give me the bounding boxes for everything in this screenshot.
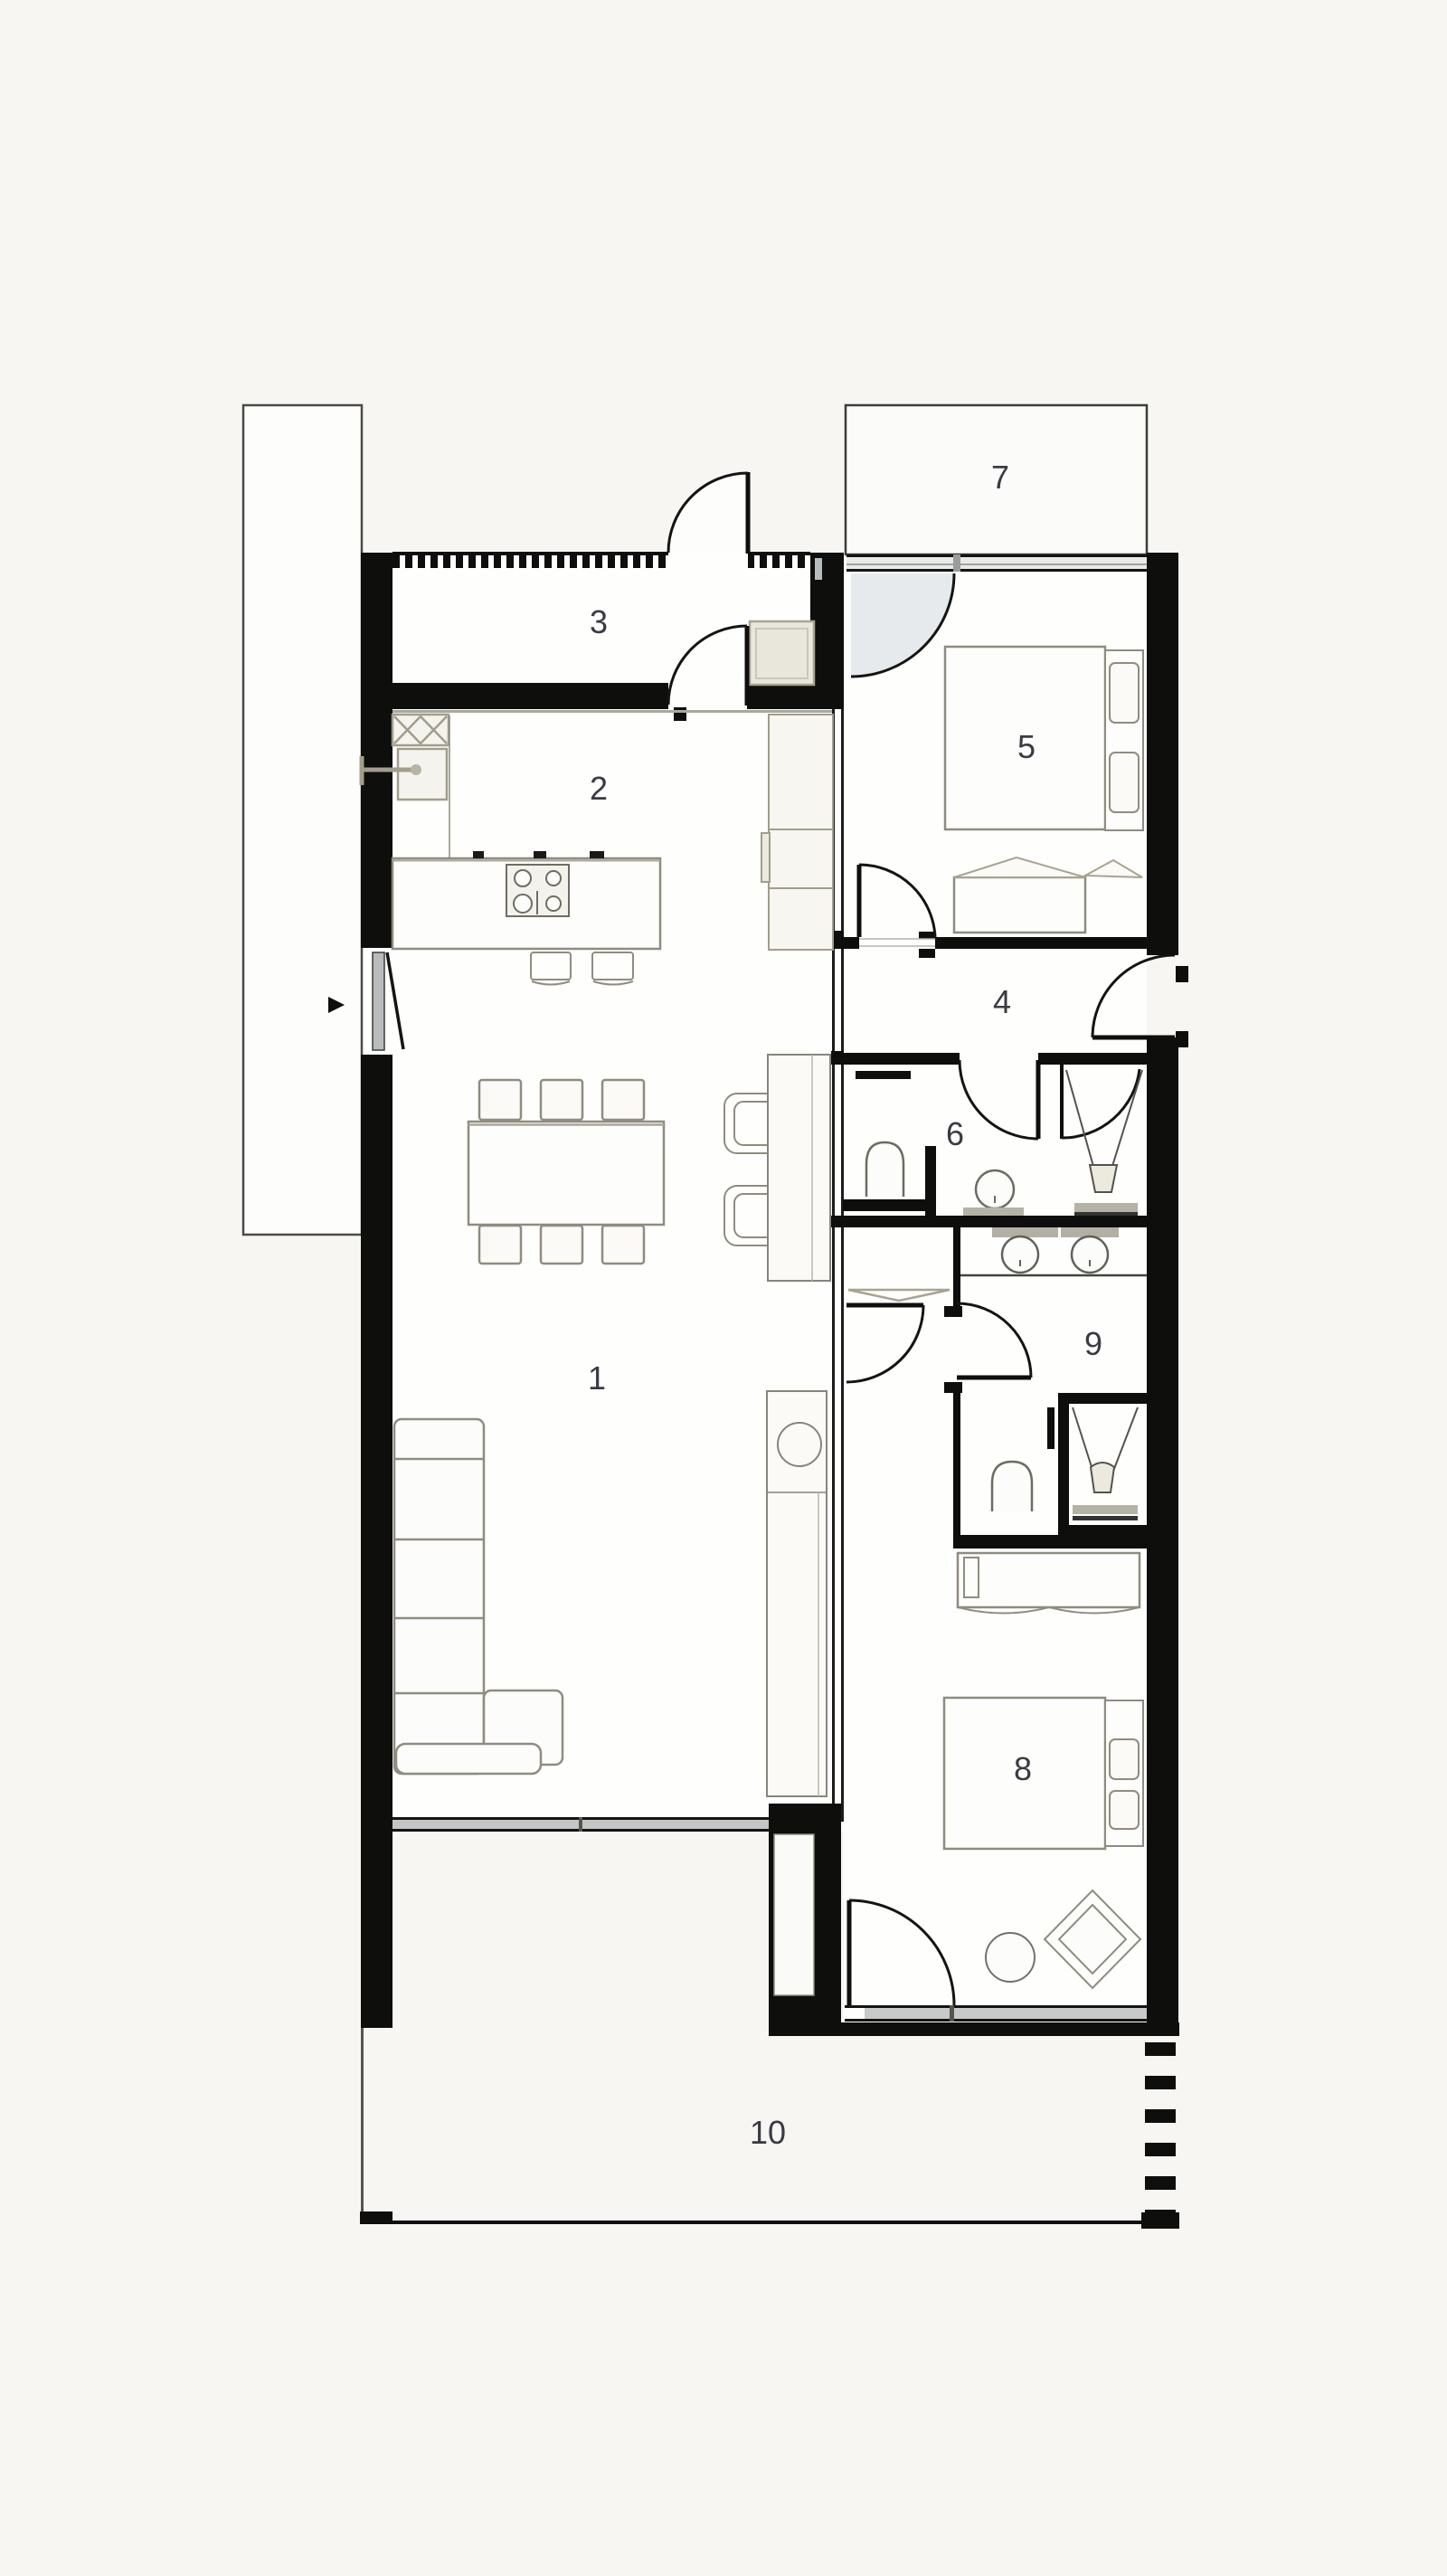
svg-text:6: 6	[946, 1115, 964, 1152]
svg-text:9: 9	[1084, 1325, 1102, 1362]
svg-text:7: 7	[991, 459, 1009, 496]
svg-text:8: 8	[1014, 1750, 1032, 1787]
svg-text:5: 5	[1017, 728, 1036, 765]
svg-text:4: 4	[993, 983, 1011, 1020]
svg-text:3: 3	[590, 603, 608, 640]
svg-text:1: 1	[588, 1359, 606, 1397]
svg-text:10: 10	[750, 2114, 786, 2151]
svg-text:2: 2	[590, 770, 608, 807]
